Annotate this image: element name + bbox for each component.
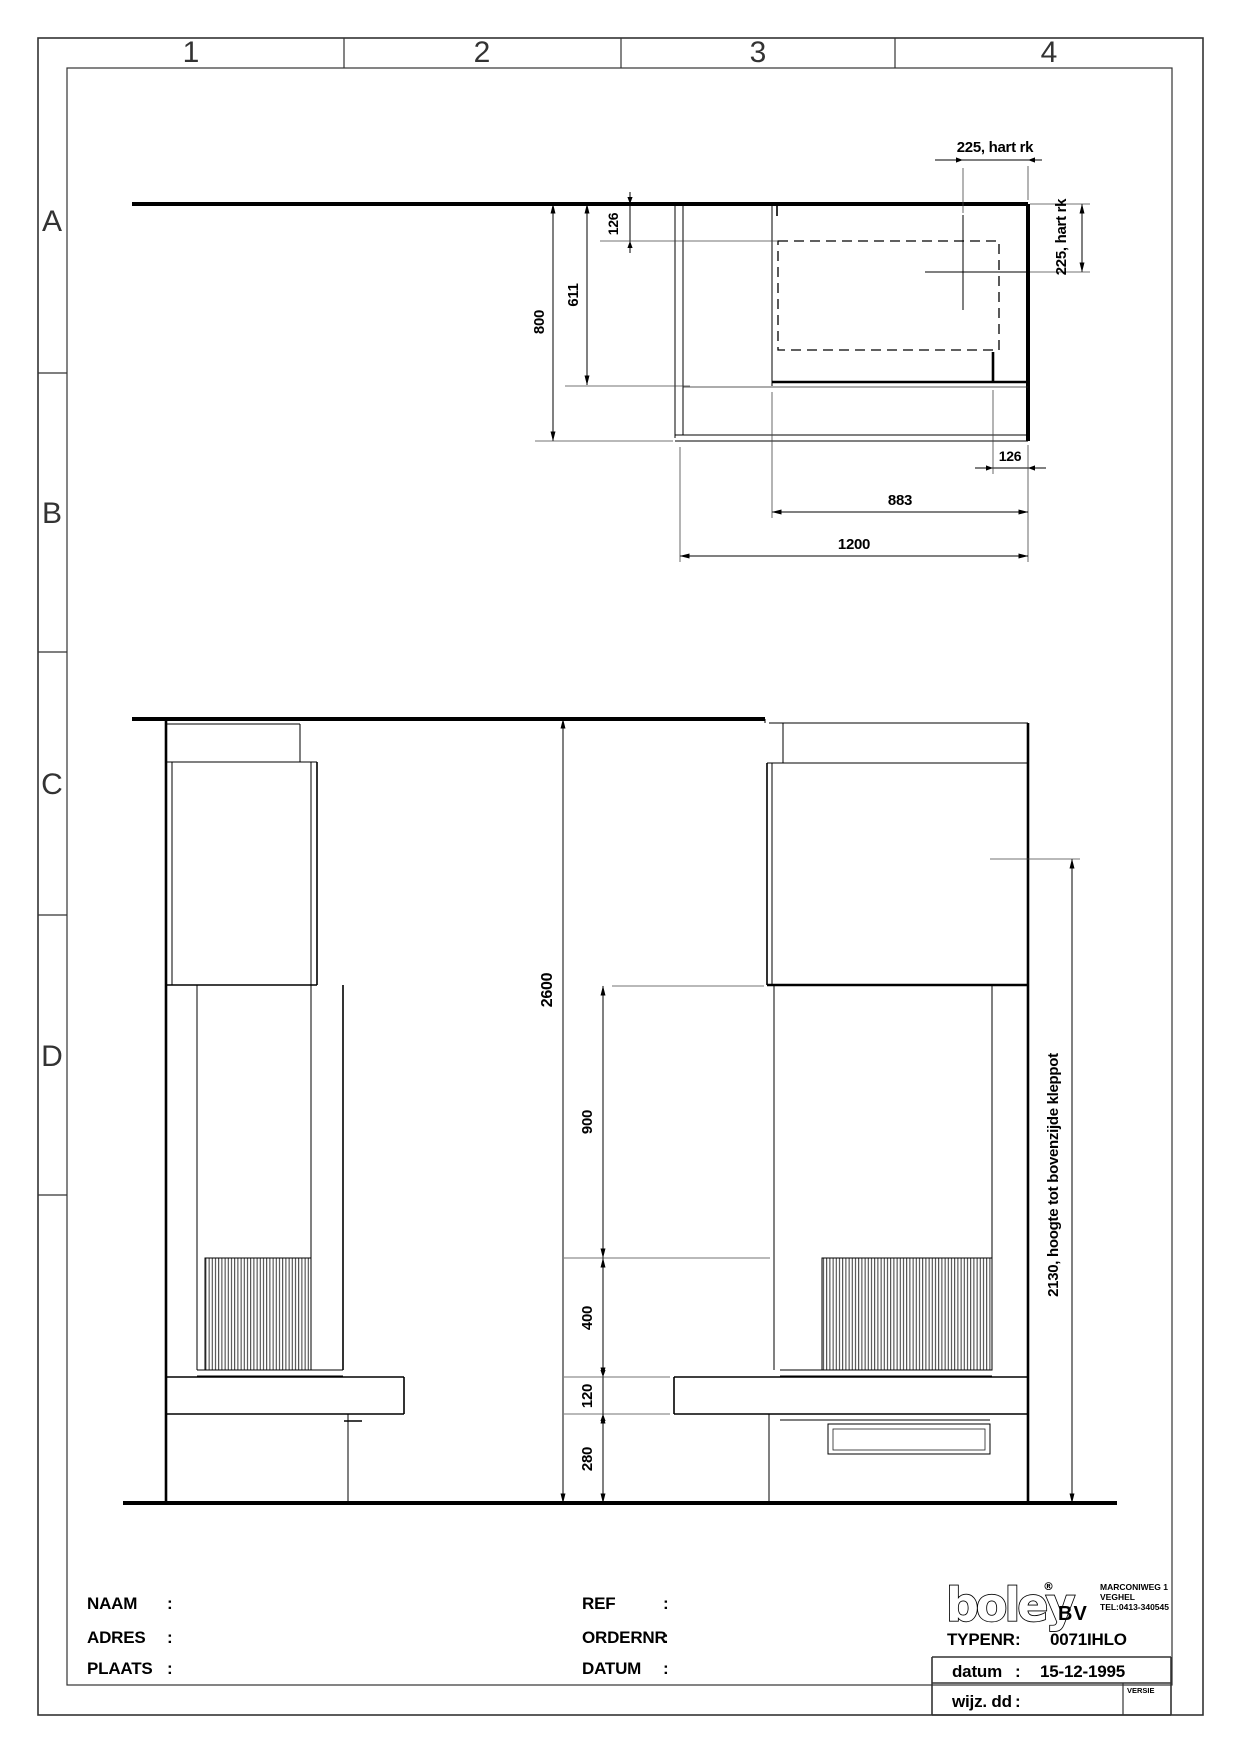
datum-row-value: 15-12-1995 [1040,1662,1125,1681]
versie-label: VERSIE [1127,1686,1155,1695]
adres-label: ADRES [87,1628,146,1647]
ordernr-colon: : [663,1628,668,1647]
company-address-line1: MARCONIWEG 1 [1100,1582,1168,1592]
plaats-label: PLAATS [87,1659,153,1678]
logo-bv: BV [1058,1603,1088,1625]
ref-colon: : [663,1594,668,1613]
grid-col-label-4: 4 [1041,36,1058,69]
grid-col-label-3: 3 [750,36,767,69]
right-elev-firebox-hatch [822,1258,992,1370]
left-elev-firebox-hatch [205,1258,311,1370]
grid-col-label-1: 1 [183,36,200,69]
grid-row-label-a: A [42,205,62,238]
ref-label: REF [582,1594,615,1613]
dim-label-120: 120 [579,1384,596,1408]
dim-label-2600: 2600 [539,972,556,1007]
dim-label-hart-right: 225, hart rk [1053,198,1070,275]
dim-label-800: 800 [531,310,548,334]
company-address-line2: VEGHEL [1100,1592,1135,1602]
grid-row-label-d: D [41,1040,63,1073]
dim-label-hart-top: 225, hart rk [957,139,1034,156]
plaats-colon: : [167,1659,172,1678]
dim-label-126-top: 126 [605,212,621,235]
dim-label-883: 883 [888,492,912,509]
dim-label-280: 280 [579,1447,596,1471]
logo-registered-icon: ® [1043,1580,1054,1593]
datum-row-colon: : [1015,1662,1020,1681]
grid-row-label-c: C [41,768,63,801]
dim-label-400: 400 [579,1306,596,1330]
typenr-label: TYPENR [947,1630,1015,1649]
wijz-colon: : [1015,1692,1020,1711]
dim-label-900: 900 [579,1110,596,1134]
wijz-label: wijz. dd [951,1692,1012,1711]
adres-colon: : [167,1628,172,1647]
dim-label-2130: 2130, hoogte tot bovenzijde kleppot [1045,1053,1062,1297]
dim-label-126-bottom: 126 [999,448,1022,464]
datum-colon: : [663,1659,668,1678]
dim-label-1200: 1200 [838,536,870,553]
naam-colon: : [167,1594,172,1613]
dim-label-611: 611 [565,283,582,306]
cad-drawing-canvas: 1 2 3 4 A B C D [0,0,1241,1754]
typenr-colon: : [1015,1630,1020,1649]
datum-label: DATUM [582,1659,641,1678]
grid-col-label-2: 2 [474,36,491,69]
datum-row-label: datum [952,1662,1002,1681]
typenr-value: 0071IHLO [1050,1630,1127,1649]
company-address-line3: TEL:0413-340545 [1100,1602,1169,1612]
grid-row-label-b: B [42,497,62,530]
naam-label: NAAM [87,1594,137,1613]
logo-wordmark: boley [946,1578,1075,1632]
drawing-sheet: 1 2 3 4 A B C D [0,0,1241,1754]
ordernr-label: ORDERNR [582,1628,667,1647]
